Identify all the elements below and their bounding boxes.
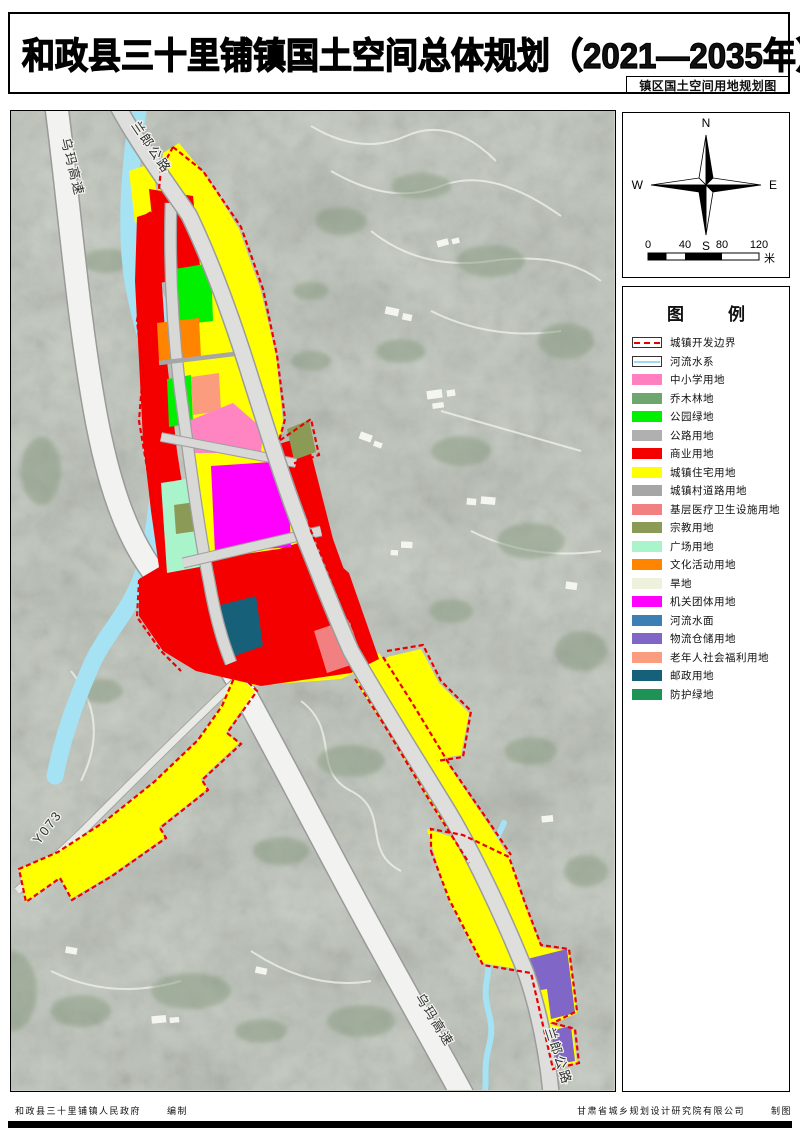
legend-label: 文化活动用地 xyxy=(670,557,736,572)
legend-label: 商业用地 xyxy=(670,446,714,461)
legend-label: 公路用地 xyxy=(670,428,714,443)
svg-text:120: 120 xyxy=(750,239,768,251)
legend-item: 宗教用地 xyxy=(632,522,789,533)
legend-swatch xyxy=(632,485,662,496)
legend-title: 图 例 xyxy=(623,300,789,325)
footer-author-role: 编制 xyxy=(167,1104,188,1117)
legend-label: 公园绿地 xyxy=(670,409,714,424)
footer-designer-org: 甘肃省城乡规划设计研究院有限公司 xyxy=(577,1104,745,1117)
legend-swatch xyxy=(632,652,662,663)
bottom-border-bar xyxy=(8,1121,792,1128)
legend-item: 邮政用地 xyxy=(632,670,789,681)
legend-swatch xyxy=(632,596,662,607)
footer-designer-role: 制图 xyxy=(771,1104,792,1117)
legend-label: 乔木林地 xyxy=(670,391,714,406)
compass-e: E xyxy=(769,178,777,192)
legend-item: 中小学用地 xyxy=(632,374,789,385)
legend-item: 物流仓储用地 xyxy=(632,633,789,644)
legend-swatch xyxy=(632,504,662,515)
legend-label: 旱地 xyxy=(670,576,692,591)
map-canvas[interactable]: 乌玛高速 兰郎公路 Y073 乌玛高速 兰郎公路 xyxy=(10,110,616,1092)
legend-item: 河流水系 xyxy=(632,356,789,367)
legend-swatch xyxy=(632,393,662,404)
legend-label: 老年人社会福利用地 xyxy=(670,650,769,665)
svg-text:40: 40 xyxy=(679,239,691,251)
legend-item: 广场用地 xyxy=(632,541,789,552)
legend-swatch xyxy=(632,689,662,700)
legend-label: 基层医疗卫生设施用地 xyxy=(670,502,780,517)
svg-text:80: 80 xyxy=(716,239,728,251)
legend-panel: 图 例 城镇开发边界河流水系中小学用地乔木林地公园绿地公路用地商业用地城镇住宅用… xyxy=(622,286,790,1092)
legend-label: 河流水系 xyxy=(670,354,714,369)
compass-w: W xyxy=(632,178,644,192)
compass-scale-box: N S E W 0 40 80 120 米 xyxy=(622,112,790,278)
legend-swatch xyxy=(632,633,662,644)
legend-swatch xyxy=(632,559,662,570)
legend-label: 防护绿地 xyxy=(670,687,714,702)
legend-item: 公园绿地 xyxy=(632,411,789,422)
legend-item: 机关团体用地 xyxy=(632,596,789,607)
legend-swatch xyxy=(632,448,662,459)
legend-swatch xyxy=(632,578,662,589)
footer-author-org: 和政县三十里铺镇人民政府 xyxy=(15,1104,141,1117)
legend-item: 公路用地 xyxy=(632,430,789,441)
compass-rose xyxy=(651,135,761,235)
legend-swatch xyxy=(632,430,662,441)
legend-item: 文化活动用地 xyxy=(632,559,789,570)
legend-item: 城镇村道路用地 xyxy=(632,485,789,496)
legend-label: 广场用地 xyxy=(670,539,714,554)
legend-label: 宗教用地 xyxy=(670,520,714,535)
footer-left: 和政县三十里铺镇人民政府 编制 xyxy=(15,1104,188,1117)
legend-label: 城镇住宅用地 xyxy=(670,465,736,480)
compass-s: S xyxy=(702,239,710,253)
compass-scale-svg: N S E W 0 40 80 120 米 xyxy=(623,113,788,276)
legend-label: 河流水面 xyxy=(670,613,714,628)
legend-swatch xyxy=(632,374,662,385)
legend-item: 老年人社会福利用地 xyxy=(632,652,789,663)
footer-right: 甘肃省城乡规划设计研究院有限公司 制图 xyxy=(577,1104,792,1117)
scale-unit: 米 xyxy=(764,252,775,265)
page-title: 和政县三十里铺镇国土空间总体规划（2021—2035年） xyxy=(22,27,800,79)
legend-label: 中小学用地 xyxy=(670,372,725,387)
legend-label: 机关团体用地 xyxy=(670,594,736,609)
subtitle-box: 镇区国土空间用地规划图 xyxy=(626,76,790,94)
legend-item: 河流水面 xyxy=(632,615,789,626)
legend-item: 商业用地 xyxy=(632,448,789,459)
legend-swatch xyxy=(632,522,662,533)
legend-label: 物流仓储用地 xyxy=(670,631,736,646)
legend-item: 城镇住宅用地 xyxy=(632,467,789,478)
legend-label: 城镇村道路用地 xyxy=(670,483,747,498)
svg-text:0: 0 xyxy=(645,239,651,251)
legend-title-left: 图 xyxy=(667,300,684,325)
legend-label: 邮政用地 xyxy=(670,668,714,683)
legend-item: 城镇开发边界 xyxy=(632,337,789,348)
legend-item: 旱地 xyxy=(632,578,789,589)
legend-swatch xyxy=(632,541,662,552)
legend-swatch xyxy=(632,467,662,478)
planning-map-page: { "header": { "title": "和政县三十里铺镇国土空间总体规划… xyxy=(0,0,800,1129)
map-subtitle: 镇区国土空间用地规划图 xyxy=(639,77,777,94)
legend-swatch xyxy=(632,411,662,422)
legend-label: 城镇开发边界 xyxy=(670,335,736,350)
legend-item: 乔木林地 xyxy=(632,393,789,404)
legend-swatch xyxy=(632,670,662,681)
legend-item: 基层医疗卫生设施用地 xyxy=(632,504,789,515)
legend-swatch xyxy=(632,615,662,626)
zone-elderly xyxy=(191,373,221,415)
planning-map-svg: 乌玛高速 兰郎公路 Y073 乌玛高速 兰郎公路 xyxy=(11,111,614,1090)
legend-item: 防护绿地 xyxy=(632,689,789,700)
legend-swatch xyxy=(632,356,662,367)
legend-title-right: 例 xyxy=(728,300,745,325)
legend-items: 城镇开发边界河流水系中小学用地乔木林地公园绿地公路用地商业用地城镇住宅用地城镇村… xyxy=(623,337,789,700)
compass-n: N xyxy=(702,116,711,130)
legend-swatch xyxy=(632,337,662,348)
